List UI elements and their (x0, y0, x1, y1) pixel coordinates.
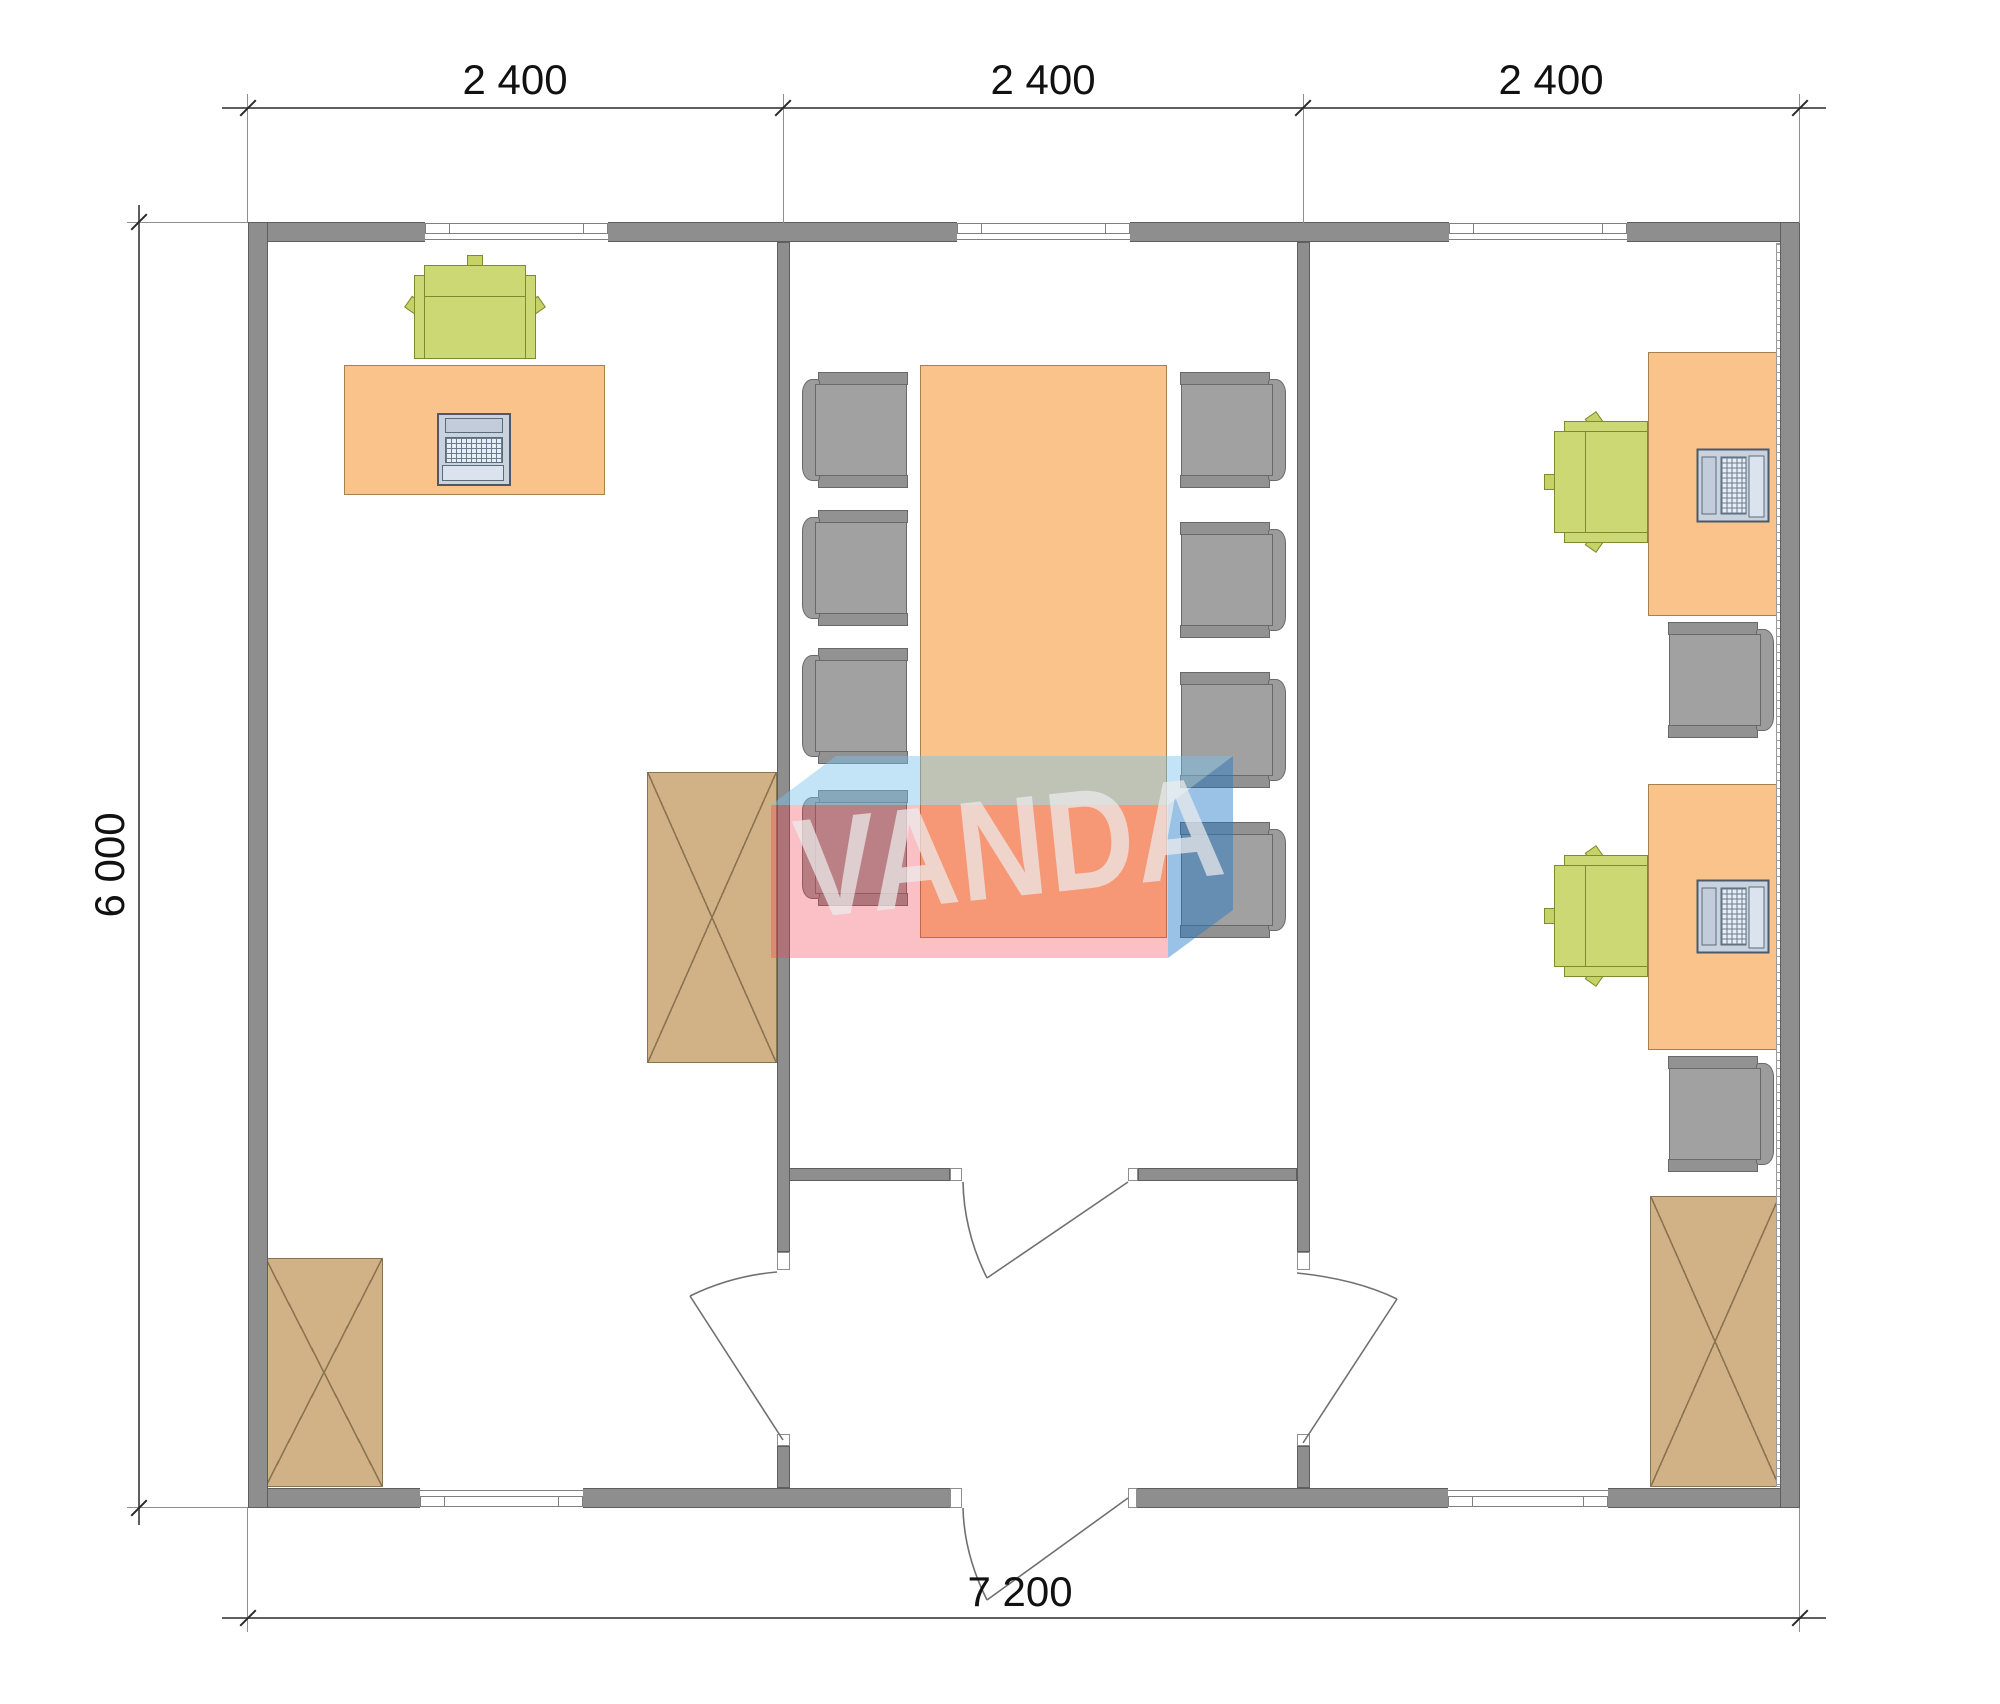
door-arc-left-room (690, 1272, 777, 1296)
extension-line (1799, 94, 1800, 223)
dimension-label-left: 6 000 (86, 812, 134, 917)
dimension-label-top-2: 2 400 (990, 56, 1095, 104)
extension-line (247, 1508, 248, 1632)
door-arc-right-room (1297, 1273, 1397, 1299)
dimension-label-top-3: 2 400 (1498, 56, 1603, 104)
extension-line (127, 222, 248, 223)
extension-line (1799, 1508, 1800, 1632)
extension-line (247, 94, 248, 223)
dimension-line-bottom (222, 1617, 1826, 1619)
floor-plan: 2 400 2 400 2 400 6 000 7 200 VANDA (0, 0, 2000, 1704)
dimension-label-bottom: 7 200 (967, 1568, 1072, 1616)
dimension-line-top (222, 107, 1826, 109)
dimension-line-left (138, 205, 140, 1525)
dimension-label-top-1: 2 400 (462, 56, 567, 104)
door-leaf-left-room (690, 1296, 783, 1440)
extension-line (783, 94, 784, 224)
extension-line (127, 1507, 248, 1508)
extension-line (1303, 94, 1304, 224)
door-arc-hall-to-meeting (963, 1182, 987, 1278)
door-swing-layer (0, 0, 2000, 1704)
door-leaf-right-room (1303, 1299, 1397, 1443)
door-leaf-hall-to-meeting (987, 1182, 1128, 1278)
